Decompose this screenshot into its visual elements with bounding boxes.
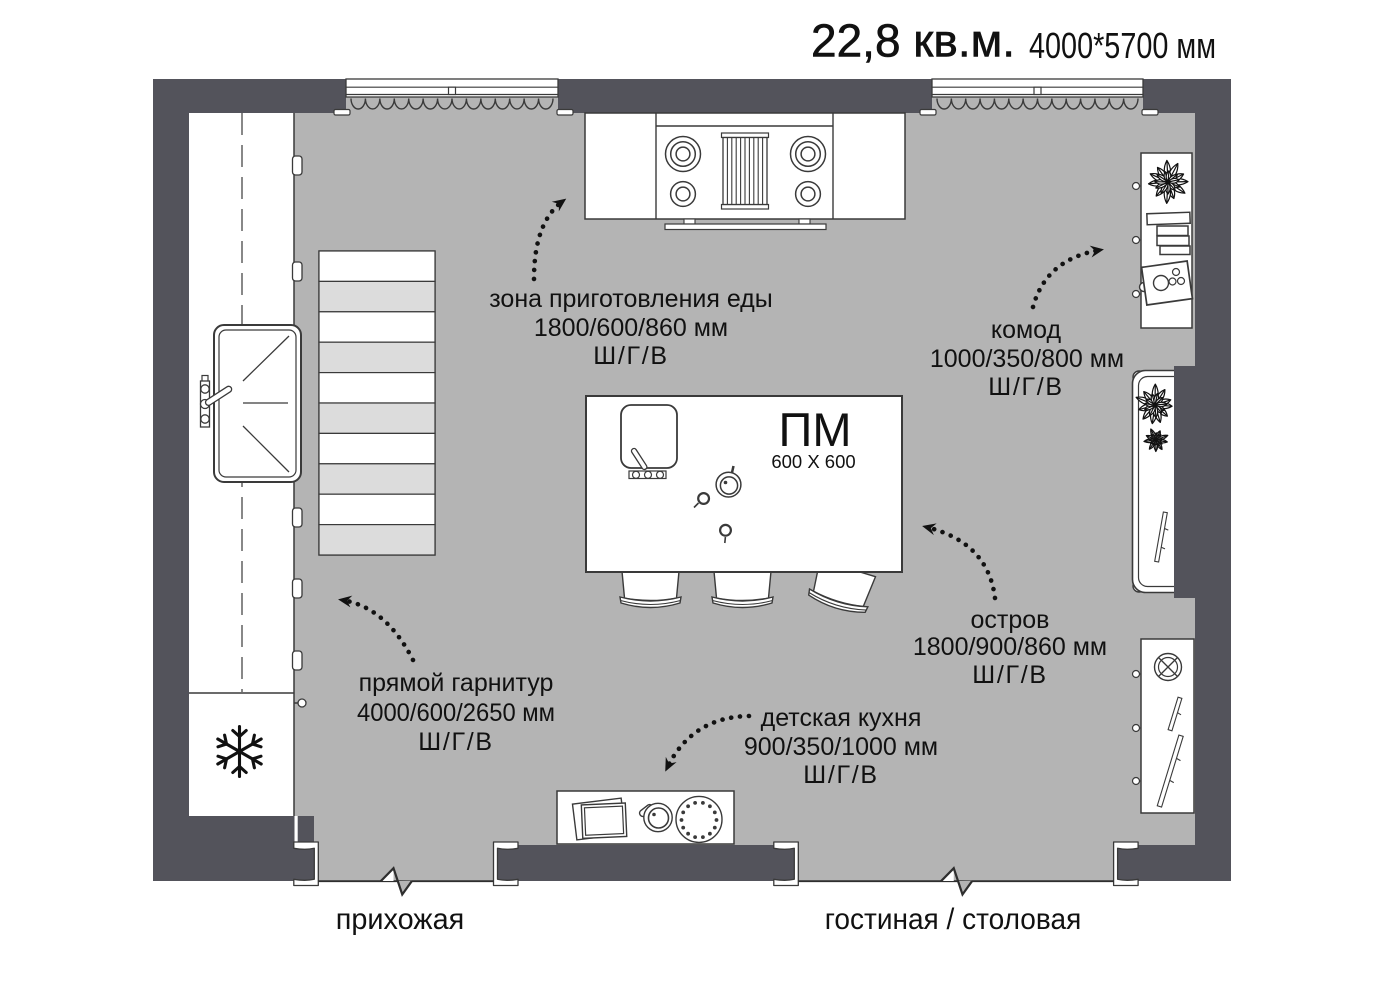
svg-text:1800/900/860 мм: 1800/900/860 мм — [913, 633, 1107, 661]
svg-text:ПМ: ПМ — [779, 403, 852, 456]
svg-text:22,8 кв.м.: 22,8 кв.м. — [811, 15, 1015, 67]
svg-text:900/350/1000 мм: 900/350/1000 мм — [744, 733, 938, 761]
svg-text:4000*5700 мм: 4000*5700 мм — [1029, 25, 1216, 66]
svg-text:детская кухня: детская кухня — [761, 704, 922, 732]
svg-text:1800/600/860 мм: 1800/600/860 мм — [534, 314, 728, 342]
svg-text:прихожая: прихожая — [336, 903, 465, 936]
svg-text:зона приготовления еды: зона приготовления еды — [489, 285, 773, 313]
svg-text:комод: комод — [991, 316, 1062, 344]
svg-text:Ш/Г/В: Ш/Г/В — [972, 661, 1048, 689]
svg-text:прямой гарнитур: прямой гарнитур — [359, 669, 554, 697]
svg-text:Ш/Г/В: Ш/Г/В — [988, 373, 1064, 401]
svg-text:остров: остров — [971, 606, 1050, 634]
svg-text:Ш/Г/В: Ш/Г/В — [593, 342, 669, 370]
svg-text:600 X 600: 600 X 600 — [771, 451, 855, 472]
svg-text:1000/350/800 мм: 1000/350/800 мм — [930, 345, 1124, 373]
svg-text:4000/600/2650 мм: 4000/600/2650 мм — [357, 699, 555, 727]
svg-text:гостиная / столовая: гостиная / столовая — [825, 903, 1082, 936]
svg-text:Ш/Г/В: Ш/Г/В — [803, 761, 879, 789]
svg-text:Ш/Г/В: Ш/Г/В — [418, 728, 494, 756]
